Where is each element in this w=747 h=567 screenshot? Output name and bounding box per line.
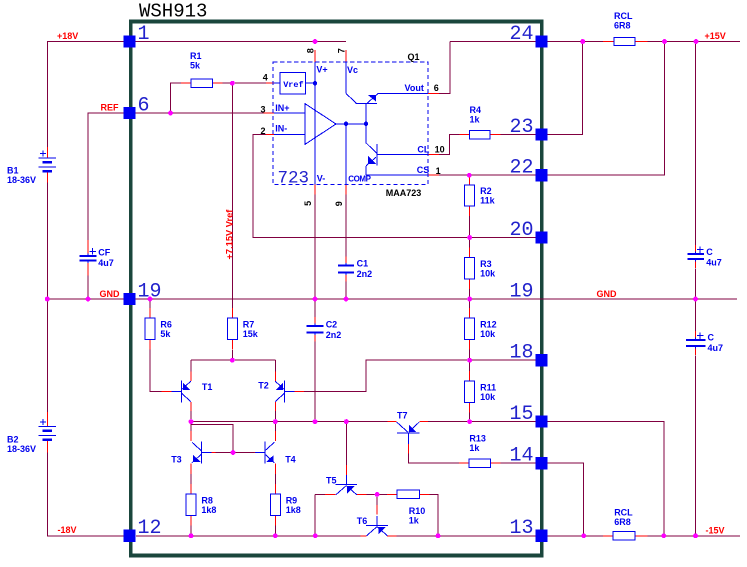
svg-text:723: 723	[278, 168, 310, 188]
svg-text:+7.15V Vref: +7.15V Vref	[225, 209, 235, 260]
svg-text:RCL: RCL	[614, 507, 633, 517]
svg-text:C: C	[706, 247, 713, 257]
svg-text:T6: T6	[357, 516, 368, 526]
svg-text:Q1: Q1	[408, 52, 420, 62]
svg-text:3: 3	[261, 104, 266, 114]
svg-text:R4: R4	[470, 105, 482, 115]
svg-text:6: 6	[138, 94, 150, 117]
svg-text:15k: 15k	[243, 329, 259, 339]
svg-text:WSH913: WSH913	[139, 0, 207, 22]
svg-text:1: 1	[138, 23, 150, 46]
svg-text:2n2: 2n2	[326, 330, 342, 340]
svg-text:C2: C2	[326, 320, 338, 330]
svg-text:R3: R3	[480, 259, 492, 269]
svg-text:R6: R6	[160, 320, 172, 330]
svg-text:1k: 1k	[469, 443, 480, 453]
svg-text:Vref: Vref	[283, 80, 303, 90]
svg-text:5k: 5k	[160, 329, 171, 339]
svg-text:7: 7	[336, 48, 346, 53]
svg-text:8: 8	[306, 48, 316, 53]
svg-text:CF: CF	[98, 248, 110, 258]
svg-text:R10: R10	[409, 506, 426, 516]
svg-text:20: 20	[509, 219, 533, 242]
svg-text:GND: GND	[597, 289, 618, 299]
svg-text:24: 24	[509, 23, 533, 46]
svg-text:Vc: Vc	[347, 65, 358, 75]
svg-text:+18V: +18V	[57, 31, 78, 41]
svg-text:5: 5	[303, 201, 313, 206]
svg-text:IN-: IN-	[275, 124, 287, 134]
svg-text:R9: R9	[286, 495, 298, 505]
svg-text:15: 15	[509, 403, 533, 426]
svg-text:V+: V+	[316, 65, 327, 75]
svg-text:COMP: COMP	[348, 175, 371, 184]
svg-text:CL: CL	[417, 144, 429, 154]
svg-text:V-: V-	[317, 174, 326, 184]
svg-text:9: 9	[334, 201, 344, 206]
svg-text:14: 14	[509, 445, 533, 468]
svg-text:1k: 1k	[409, 516, 420, 526]
svg-text:T5: T5	[326, 476, 337, 486]
svg-text:2: 2	[261, 126, 266, 136]
svg-text:12: 12	[138, 517, 162, 540]
svg-text:4: 4	[263, 73, 268, 83]
svg-text:R11: R11	[480, 382, 496, 392]
svg-text:R7: R7	[243, 320, 255, 330]
svg-text:R13: R13	[469, 433, 486, 443]
svg-text:C: C	[708, 333, 715, 343]
svg-text:REF: REF	[101, 102, 120, 112]
svg-text:1k8: 1k8	[286, 505, 301, 515]
svg-text:R1: R1	[190, 51, 202, 61]
svg-text:1k8: 1k8	[201, 505, 216, 515]
svg-text:-18V: -18V	[58, 525, 77, 535]
svg-text:6R8: 6R8	[614, 517, 631, 527]
svg-text:MAA723: MAA723	[386, 188, 422, 198]
svg-text:RCL: RCL	[614, 11, 633, 21]
svg-text:1: 1	[436, 166, 441, 176]
svg-text:-15V: -15V	[706, 525, 725, 535]
svg-text:10: 10	[435, 144, 445, 154]
svg-text:CS: CS	[417, 165, 430, 175]
svg-text:1k: 1k	[470, 114, 481, 124]
svg-text:4u7: 4u7	[708, 343, 724, 353]
svg-text:T4: T4	[285, 455, 296, 465]
svg-text:R8: R8	[201, 495, 213, 505]
svg-text:18-36V: 18-36V	[7, 444, 36, 454]
svg-text:GND: GND	[100, 289, 121, 299]
svg-text:T1: T1	[202, 382, 213, 392]
svg-text:T3: T3	[171, 455, 182, 465]
svg-text:+15V: +15V	[705, 31, 726, 41]
svg-text:IN+: IN+	[275, 103, 289, 113]
svg-text:R12: R12	[480, 319, 497, 329]
svg-text:T7: T7	[397, 411, 408, 421]
svg-text:18: 18	[509, 342, 533, 365]
svg-text:4u7: 4u7	[706, 257, 722, 267]
svg-text:T2: T2	[258, 381, 269, 391]
svg-text:C1: C1	[357, 259, 369, 269]
svg-text:23: 23	[509, 116, 533, 139]
svg-text:Vout: Vout	[405, 83, 424, 93]
svg-text:19: 19	[509, 280, 533, 303]
svg-text:13: 13	[509, 517, 533, 540]
svg-text:10k: 10k	[480, 392, 496, 402]
svg-text:6R8: 6R8	[614, 21, 631, 31]
svg-text:22: 22	[509, 157, 533, 180]
svg-text:5k: 5k	[190, 61, 201, 71]
svg-text:18-36V: 18-36V	[7, 175, 36, 185]
svg-text:10k: 10k	[480, 329, 496, 339]
svg-text:R2: R2	[480, 186, 492, 196]
svg-text:2n2: 2n2	[357, 269, 373, 279]
svg-text:4u7: 4u7	[98, 258, 114, 268]
svg-text:11k: 11k	[480, 196, 496, 206]
svg-text:10k: 10k	[480, 268, 496, 278]
svg-text:6: 6	[434, 83, 439, 93]
